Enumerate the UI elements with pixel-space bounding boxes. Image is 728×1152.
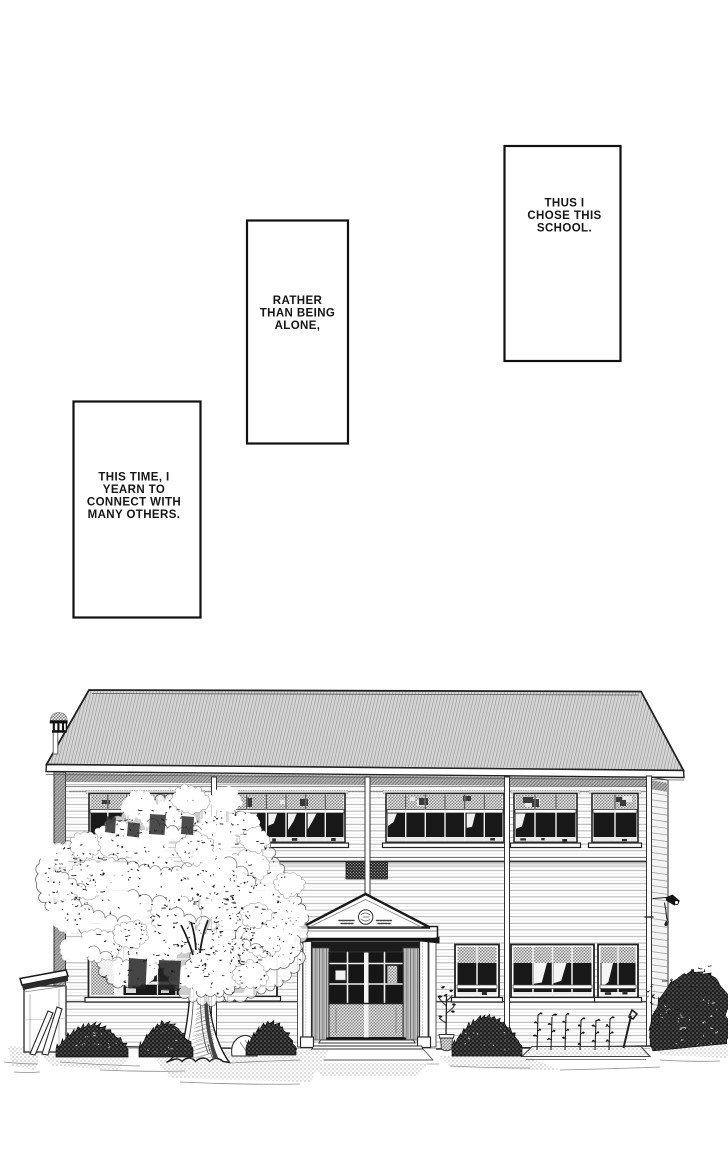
svg-text:THIS TIME, I: THIS TIME, I [98,472,169,484]
svg-text:SCHOOL.: SCHOOL. [537,223,592,235]
svg-text:ALONE,: ALONE, [275,320,321,332]
svg-text:RATHER: RATHER [273,295,323,307]
svg-text:CONNECT WITH: CONNECT WITH [87,497,181,509]
svg-text:MANY OTHERS.: MANY OTHERS. [88,509,181,521]
svg-text:THUS I: THUS I [544,198,584,210]
svg-text:CHOSE THIS: CHOSE THIS [527,210,601,222]
svg-text:YEARN TO: YEARN TO [103,484,165,496]
svg-text:THAN BEING: THAN BEING [260,308,336,320]
